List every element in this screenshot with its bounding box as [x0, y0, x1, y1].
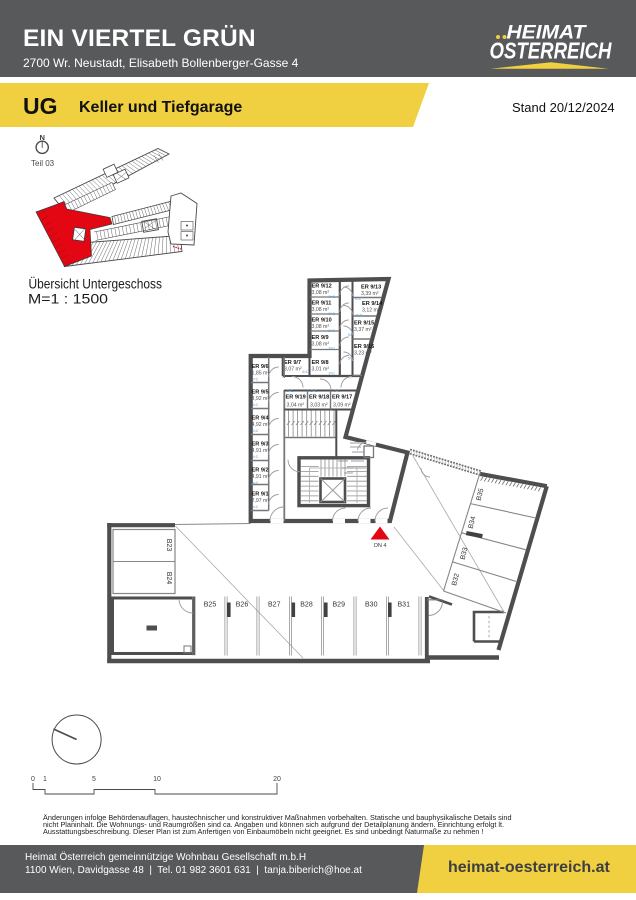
svg-text:ER 9/14: ER 9/14	[362, 301, 383, 307]
svg-text:ER 9/13: ER 9/13	[361, 285, 381, 291]
svg-text:ER 9/12: ER 9/12	[312, 284, 332, 290]
svg-text:B27: B27	[268, 602, 281, 609]
svg-text:3,08 m²: 3,08 m²	[312, 290, 330, 296]
svg-text:0: 0	[31, 776, 35, 783]
svg-text:ER 9/4: ER 9/4	[252, 416, 270, 422]
svg-text:ER 9/7: ER 9/7	[284, 360, 301, 366]
svg-text:ER 9/1: ER 9/1	[252, 492, 269, 498]
svg-text:3,08 m²: 3,08 m²	[312, 307, 330, 313]
svg-text:B26: B26	[236, 602, 249, 609]
svg-text:N: N	[39, 133, 44, 142]
svg-text:3=C: 3=C	[302, 370, 309, 374]
svg-text:3,37 m²: 3,37 m²	[354, 327, 372, 333]
svg-text:B33: B33	[460, 547, 470, 561]
svg-text:B30: B30	[365, 602, 378, 609]
svg-text:3=C: 3=C	[329, 329, 336, 333]
svg-text:5=C: 5=C	[311, 389, 318, 393]
svg-text:4,91 m²: 4,91 m²	[252, 448, 270, 454]
svg-text:3,03 m²: 3,03 m²	[310, 403, 328, 409]
svg-text:ER 9/9: ER 9/9	[312, 335, 329, 341]
svg-text:3,04 m²: 3,04 m²	[287, 403, 305, 409]
svg-text:5=C: 5=C	[334, 389, 341, 393]
svg-text:ER 9/5: ER 9/5	[252, 390, 269, 396]
svg-text:ER 9/6: ER 9/6	[252, 364, 269, 370]
svg-text:3=C: 3=C	[329, 295, 336, 299]
svg-text:B23: B23	[165, 539, 172, 552]
svg-text:5=C: 5=C	[348, 333, 355, 337]
svg-text:B32: B32	[451, 573, 461, 587]
svg-text:ER 9/17: ER 9/17	[332, 395, 352, 401]
svg-text:10: 10	[153, 776, 161, 783]
svg-text:3,09 m²: 3,09 m²	[333, 403, 351, 409]
svg-text:ER 9/3: ER 9/3	[252, 442, 269, 448]
svg-text:Teil 03: Teil 03	[31, 159, 55, 168]
svg-text:3,39 m²: 3,39 m²	[361, 291, 379, 297]
svg-text:4,92 m²: 4,92 m²	[252, 422, 270, 428]
svg-text:3,23 m²: 3,23 m²	[354, 351, 372, 357]
svg-text:1,85 m²: 1,85 m²	[252, 371, 270, 377]
svg-text:1: 1	[43, 776, 47, 783]
svg-text:2,97 m²: 2,97 m²	[252, 498, 270, 504]
svg-text:3=C: 3=C	[252, 378, 259, 382]
svg-text:5=C: 5=C	[287, 389, 294, 393]
svg-text:B34: B34	[468, 516, 478, 530]
svg-text:3,08 m²: 3,08 m²	[312, 341, 330, 347]
svg-text:B29: B29	[333, 602, 346, 609]
svg-text:3=C: 3=C	[252, 505, 259, 509]
svg-text:3,92 m²: 3,92 m²	[252, 396, 270, 402]
svg-text:ON 4: ON 4	[374, 543, 387, 549]
svg-text:B24: B24	[165, 572, 172, 585]
svg-text:3,07 m²: 3,07 m²	[284, 366, 302, 372]
svg-text:3,08 m²: 3,08 m²	[312, 324, 330, 330]
svg-text:ER 9/18: ER 9/18	[309, 395, 329, 401]
svg-text:3=C: 3=C	[329, 372, 336, 376]
svg-text:Übersicht Untergeschoss: Übersicht Untergeschoss	[29, 277, 163, 292]
svg-text:5=C: 5=C	[356, 314, 363, 318]
svg-text:3=C: 3=C	[329, 312, 336, 316]
svg-text:5=C: 5=C	[355, 297, 362, 301]
svg-text:ER 9/15: ER 9/15	[354, 321, 374, 327]
svg-text:3,01 m²: 3,01 m²	[312, 366, 330, 372]
svg-text:B35: B35	[476, 488, 486, 502]
svg-text:ER 9/10: ER 9/10	[312, 318, 332, 324]
svg-text:ER 9/16: ER 9/16	[354, 344, 374, 350]
svg-text:5=C: 5=C	[348, 357, 355, 361]
svg-text:5: 5	[92, 776, 96, 783]
svg-text:3,12 m²: 3,12 m²	[362, 308, 380, 314]
svg-text:B28: B28	[300, 602, 313, 609]
svg-text:ER 9/19: ER 9/19	[286, 395, 306, 401]
svg-text:3=C: 3=C	[329, 347, 336, 351]
svg-text:ER 9/2: ER 9/2	[252, 468, 269, 474]
svg-text:3=C: 3=C	[252, 403, 259, 407]
svg-text:4,91 m²: 4,91 m²	[252, 474, 270, 480]
svg-text:B31: B31	[398, 602, 411, 609]
svg-text:B25: B25	[204, 602, 217, 609]
svg-text:3=C: 3=C	[252, 481, 259, 485]
svg-text:3=C: 3=C	[252, 455, 259, 459]
svg-text:M=1 : 1500: M=1 : 1500	[28, 292, 108, 307]
svg-text:ER 9/11: ER 9/11	[312, 301, 332, 307]
svg-text:20: 20	[273, 776, 281, 783]
svg-text:ER 9/8: ER 9/8	[312, 360, 329, 366]
svg-text:3=C: 3=C	[252, 429, 259, 433]
